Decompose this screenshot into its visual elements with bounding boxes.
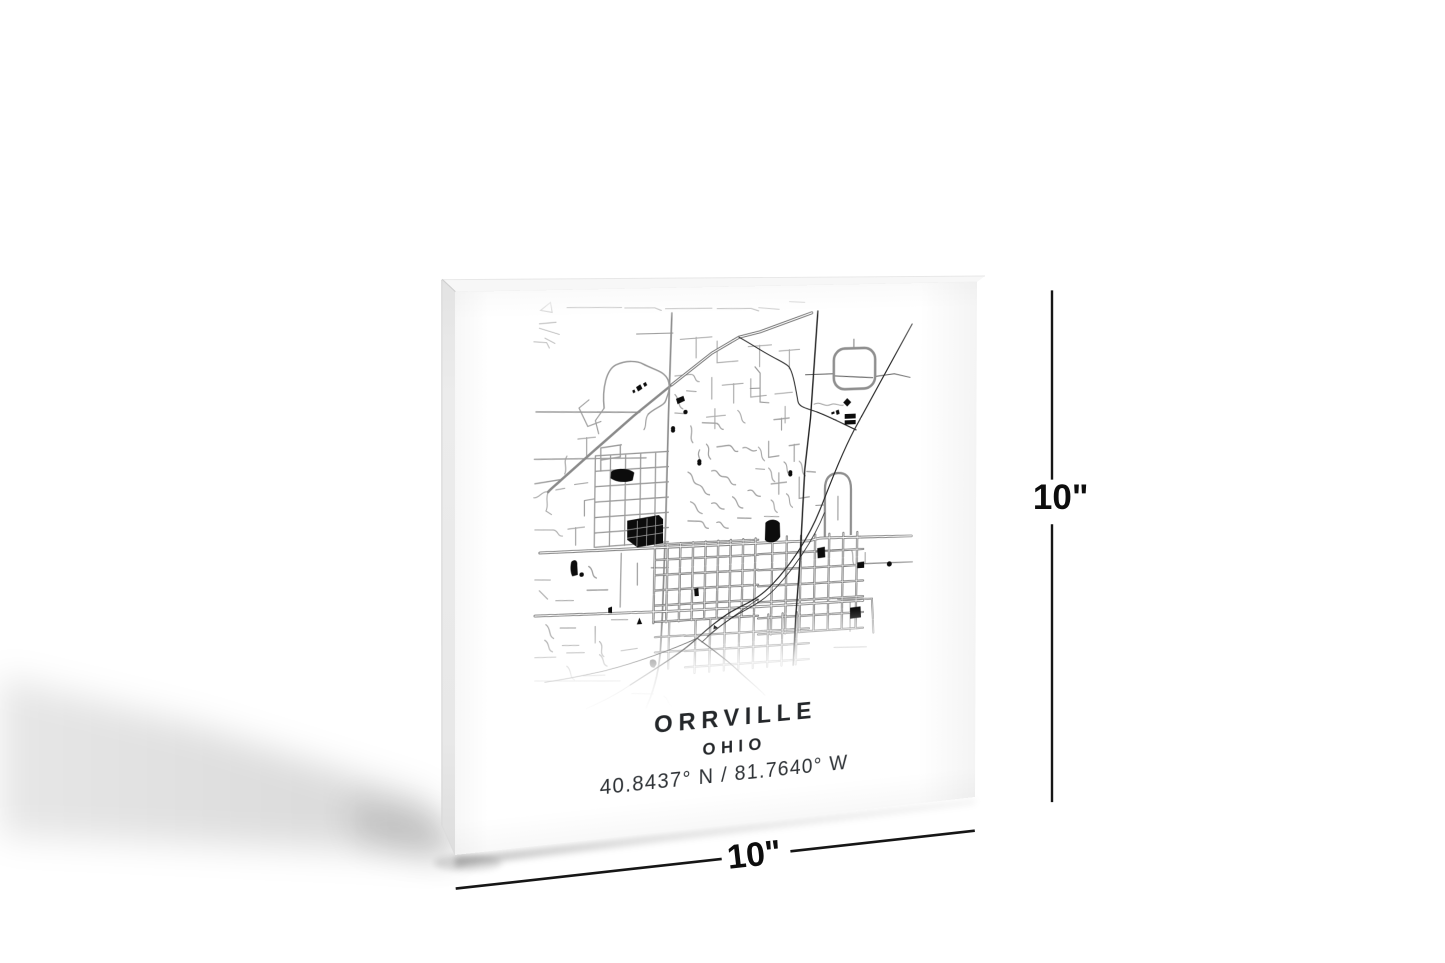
svg-text:10": 10": [725, 833, 783, 877]
svg-text:10": 10": [1033, 478, 1089, 517]
